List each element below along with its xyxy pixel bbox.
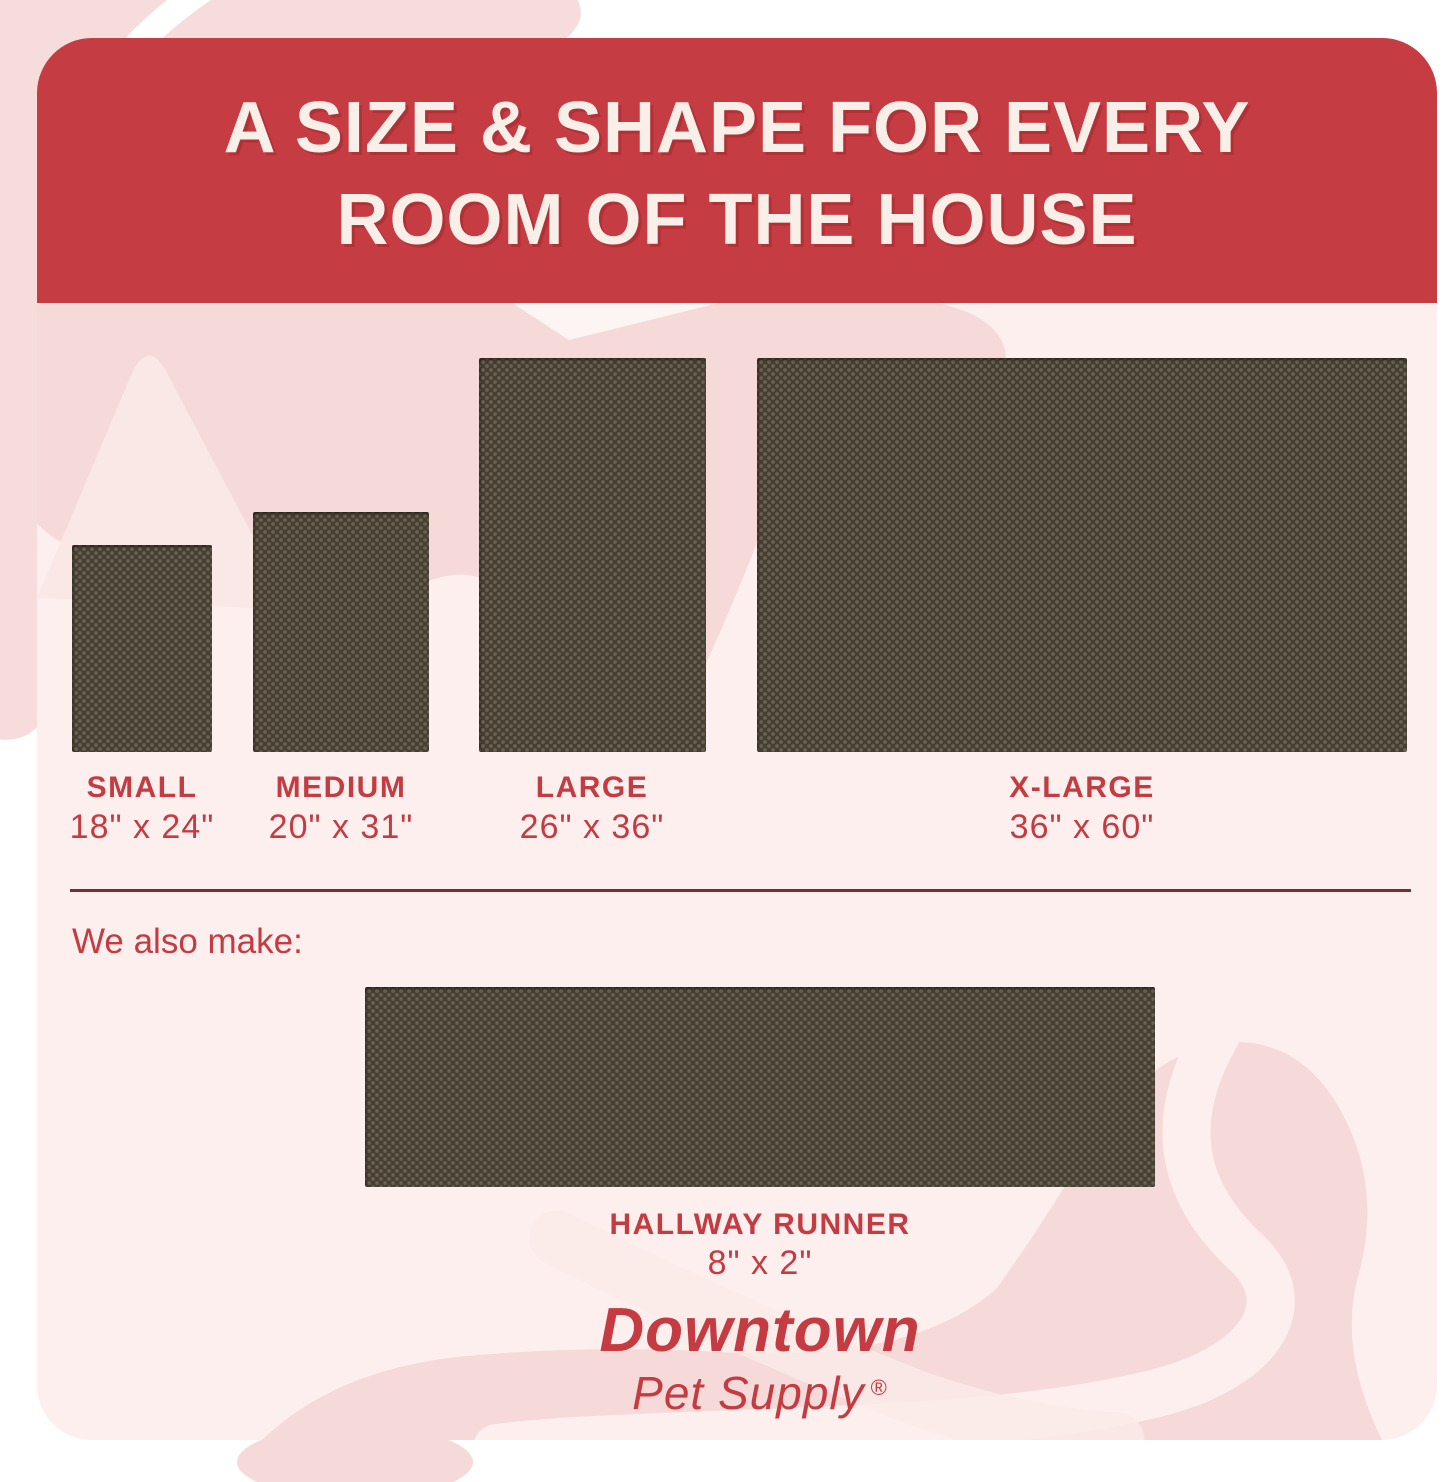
runner-name: HALLWAY RUNNER	[600, 1208, 920, 1242]
registered-trademark-symbol: ®	[871, 1375, 888, 1400]
size-dims-xlarge: 36" x 60"	[922, 808, 1242, 847]
size-name-large: LARGE	[432, 771, 752, 805]
brand-subname-text: Pet Supply	[632, 1367, 864, 1419]
rug-swatch-large	[479, 358, 706, 752]
section-divider	[70, 889, 1411, 892]
rug-swatch-hallway-runner	[365, 987, 1155, 1187]
page-title-line2: ROOM OF THE HOUSE	[37, 174, 1437, 266]
brand-subname: Pet Supply®	[460, 1362, 1060, 1419]
infographic-page: A SIZE & SHAPE FOR EVERY ROOM OF THE HOU…	[0, 0, 1445, 1482]
size-name-xlarge: X-LARGE	[922, 771, 1242, 805]
rug-swatch-medium	[253, 512, 429, 752]
header-banner: A SIZE & SHAPE FOR EVERY ROOM OF THE HOU…	[37, 38, 1437, 303]
rug-swatch-xlarge	[757, 358, 1407, 752]
page-title-line1: A SIZE & SHAPE FOR EVERY	[37, 82, 1437, 174]
rug-swatch-small	[72, 545, 212, 752]
runner-dims: 8" x 2"	[600, 1244, 920, 1283]
infographic-card: A SIZE & SHAPE FOR EVERY ROOM OF THE HOU…	[37, 38, 1437, 1440]
page-title: A SIZE & SHAPE FOR EVERY ROOM OF THE HOU…	[37, 82, 1437, 266]
brand-logo: Downtown Pet Supply®	[460, 1300, 1060, 1419]
also-make-label: We also make:	[72, 922, 303, 962]
brand-name: Downtown	[460, 1300, 1060, 1362]
size-dims-large: 26" x 36"	[432, 808, 752, 847]
